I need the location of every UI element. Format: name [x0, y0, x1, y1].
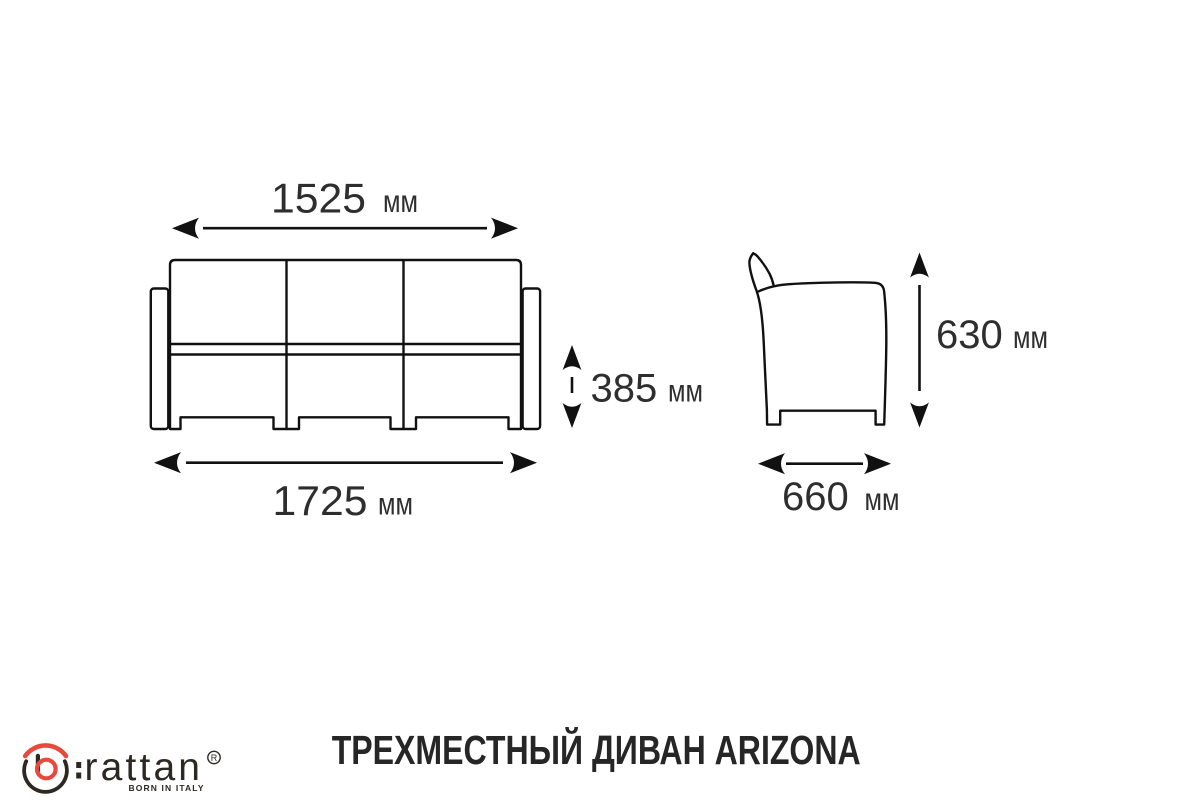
svg-text:385: 385: [591, 367, 658, 411]
svg-text:мм: мм: [865, 481, 900, 517]
svg-text:660: 660: [782, 475, 849, 519]
svg-text:мм: мм: [378, 486, 413, 522]
svg-text:мм: мм: [383, 183, 418, 219]
svg-text:1525: 1525: [271, 174, 366, 221]
svg-text:BORN IN ITALY: BORN IN ITALY: [129, 783, 204, 793]
svg-text:мм: мм: [668, 373, 703, 409]
svg-text:1725: 1725: [273, 477, 368, 524]
svg-text:мм: мм: [1013, 319, 1048, 355]
svg-text:ТРЕХМЕСТНЫЙ ДИВАН ARIZONA: ТРЕХМЕСТНЫЙ ДИВАН ARIZONA: [332, 727, 861, 773]
svg-text:630: 630: [936, 313, 1003, 357]
svg-text:R: R: [211, 753, 218, 763]
